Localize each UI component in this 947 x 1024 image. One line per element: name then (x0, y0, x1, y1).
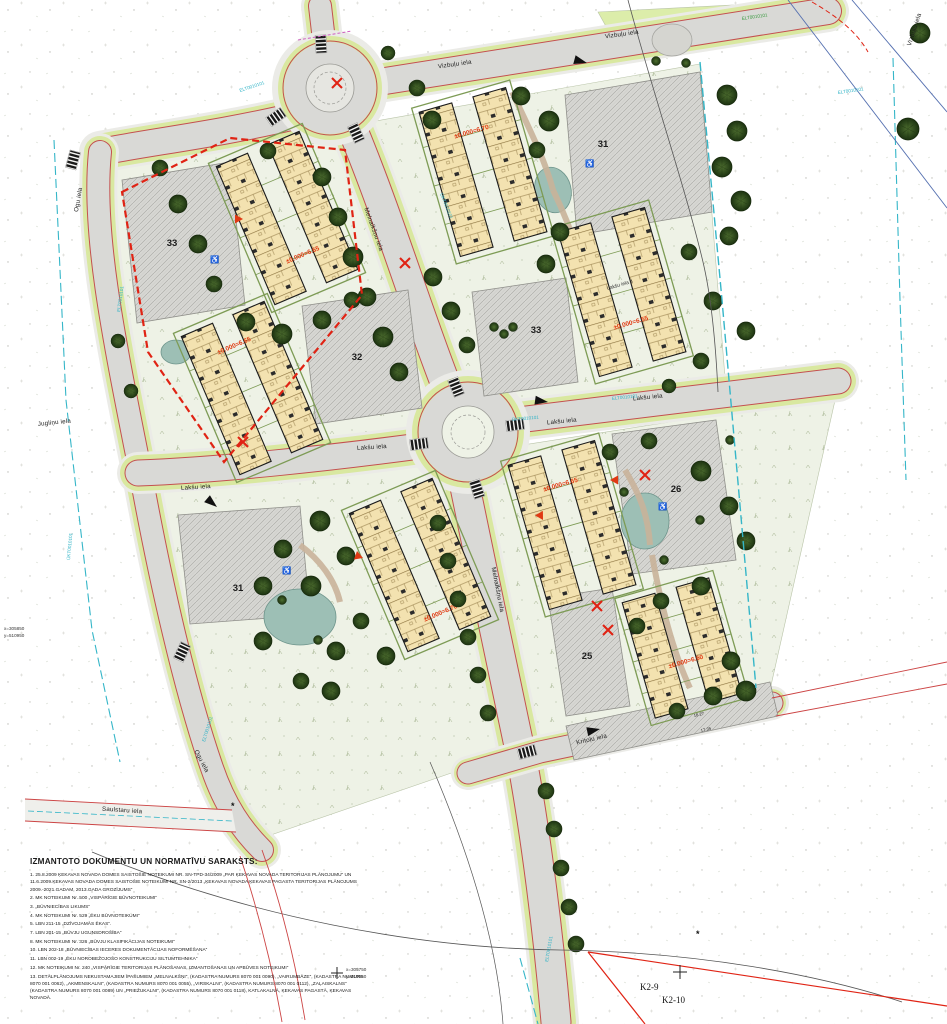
bush-icon (620, 488, 629, 497)
tree-icon (353, 613, 369, 629)
tree-icon (537, 255, 555, 273)
coordinate-label: y=510950 (4, 633, 25, 638)
document-list-title: IZMANTOTO DOKUMENTU UN NORMATĪVU SARAKST… (30, 856, 366, 868)
tree-icon (553, 860, 569, 876)
doc-list-item: 2. MK NOTEIKUMI Nr. 500 „VISPĀRĪGIE BŪVN… (30, 895, 366, 902)
doc-list-item: 7. LBN 201-15 „BŪVJU UGUNSDROŠĪBA” (30, 930, 366, 937)
pond-southwest (264, 589, 336, 645)
doc-list-item: 8. MK NOTEIKUMI Nr. 326 „BŪVJU KLASIFIKĀ… (30, 939, 366, 946)
document-list-items: 1. 25.8.2009 ĶEKAVAS NOVADA DOMES SAISTO… (30, 872, 366, 1002)
tree-icon (409, 80, 425, 96)
tree-icon (551, 223, 569, 241)
tree-icon (720, 227, 738, 245)
doc-list-item: 10. LBN 202-18 „BŪVNIECĪBAS IECERES DOKU… (30, 947, 366, 954)
bush-icon (490, 323, 499, 332)
gray-mound (652, 24, 692, 56)
tree-icon (546, 821, 562, 837)
tree-icon (736, 681, 756, 701)
tree-icon (720, 497, 738, 515)
tree-icon (897, 118, 919, 140)
tree-icon (254, 632, 272, 650)
tree-icon (322, 682, 340, 700)
tree-icon (274, 540, 292, 558)
tree-icon (722, 652, 740, 670)
parking-number: 32 (352, 352, 363, 363)
survey-star: * (696, 929, 700, 939)
bush-icon (500, 330, 509, 339)
tree-icon (480, 705, 496, 721)
tree-icon (717, 85, 737, 105)
tree-icon (424, 268, 442, 286)
parking-number: 33 (531, 325, 542, 336)
tree-icon (737, 532, 755, 550)
tree-icon (373, 327, 393, 347)
coordinate-label: x=305850 (4, 626, 25, 631)
tree-icon (442, 302, 460, 320)
tree-icon (512, 87, 530, 105)
tree-icon (329, 208, 347, 226)
bush-icon (682, 59, 691, 68)
tree-icon (460, 629, 476, 645)
parking-number: 33 (167, 238, 178, 249)
tree-icon (377, 647, 395, 665)
bush-icon (652, 57, 661, 66)
tree-icon (260, 143, 276, 159)
tree-icon (602, 444, 618, 460)
bush-icon (660, 556, 669, 565)
parking-lot-26 (612, 420, 736, 574)
bush-icon (509, 323, 518, 332)
tree-icon (430, 515, 446, 531)
tree-icon (681, 244, 697, 260)
tree-icon (327, 642, 345, 660)
tree-icon (653, 593, 669, 609)
wheelchair-icon: ♿ (658, 502, 667, 511)
tree-icon (313, 311, 331, 329)
tree-icon (692, 577, 710, 595)
bush-icon (278, 596, 287, 605)
tree-icon (337, 547, 355, 565)
site-plan-page: ±0.000=6.65 ±0.000=6.70 Lakšu iela 4 ±0.… (0, 0, 947, 1024)
tree-icon (390, 363, 408, 381)
doc-list-item: 3. „BŪVNIECĪBAS LIKUMS” (30, 904, 366, 911)
tree-icon (310, 511, 330, 531)
crosswalk (315, 35, 327, 54)
tree-icon (440, 553, 456, 569)
tree-icon (529, 142, 545, 158)
tree-icon (568, 936, 584, 952)
bush-icon (314, 636, 323, 645)
doc-list-item: 11. LBN 002-19 „ĒKU NOROBEŽOJOŠO KONSTRU… (30, 956, 366, 963)
tree-icon (691, 461, 711, 481)
tree-icon (539, 111, 559, 131)
document-list: IZMANTOTO DOKUMENTU UN NORMATĪVU SARAKST… (30, 856, 366, 1004)
crosswalk (409, 437, 428, 450)
tree-icon (313, 168, 331, 186)
parking-number: 31 (233, 583, 244, 594)
tree-icon (693, 353, 709, 369)
tree-icon (254, 577, 272, 595)
wheelchair-icon: ♿ (585, 159, 594, 168)
doc-list-item: 5. LBN 211-15 „DZĪVOJAMĀS ĒKAS”. (30, 921, 366, 928)
bush-icon (696, 516, 705, 525)
tree-icon (343, 247, 363, 267)
tree-icon (712, 157, 732, 177)
tree-icon (206, 276, 222, 292)
tree-icon (641, 433, 657, 449)
tree-icon (301, 576, 321, 596)
tree-icon (561, 899, 577, 915)
parking-lot-33-center (472, 278, 578, 396)
doc-list-item: 1. 25.8.2009 ĶEKAVAS NOVADA DOMES SAISTO… (30, 872, 366, 894)
tree-icon (152, 160, 168, 176)
tree-icon (737, 322, 755, 340)
tree-icon (381, 46, 395, 60)
tree-icon (423, 111, 441, 129)
tree-icon (629, 618, 645, 634)
survey-star: * (231, 801, 235, 811)
tree-icon (293, 673, 309, 689)
wheelchair-icon: ♿ (210, 255, 219, 264)
tree-icon (538, 783, 554, 799)
tree-icon (450, 591, 466, 607)
tree-icon (189, 235, 207, 253)
tree-icon (662, 379, 676, 393)
doc-list-item: 13. DETĀLPLĀNOJUMS NEKUSTAMAJIEM ĪPAŠUMI… (30, 974, 366, 1003)
tree-icon (169, 195, 187, 213)
tree-icon (704, 292, 722, 310)
tree-icon (470, 667, 486, 683)
tree-icon (111, 334, 125, 348)
tree-icon (669, 703, 685, 719)
tree-icon (237, 313, 255, 331)
tree-icon (124, 384, 138, 398)
tree-icon (727, 121, 747, 141)
parking-number: 25 (582, 651, 593, 662)
tree-icon (731, 191, 751, 211)
parking-number: 31 (598, 139, 609, 150)
parking-number: 26 (671, 484, 682, 495)
doc-list-item: 4. MK NOTEIKUMI Nr. 529 „ĒKU BŪVNOTEIKUM… (30, 913, 366, 920)
tree-icon (272, 324, 292, 344)
wheelchair-icon: ♿ (282, 566, 291, 575)
sheet-ref-k2-10: K2-10 (662, 995, 685, 1005)
bush-icon (726, 436, 735, 445)
sheet-ref-k2-9: K2-9 (640, 982, 659, 992)
tree-icon (704, 687, 722, 705)
tree-icon (459, 337, 475, 353)
doc-list-item: 12. MK NOTEIKUMI Nr. 240 „VISPĀRĪGIE TER… (30, 965, 366, 972)
